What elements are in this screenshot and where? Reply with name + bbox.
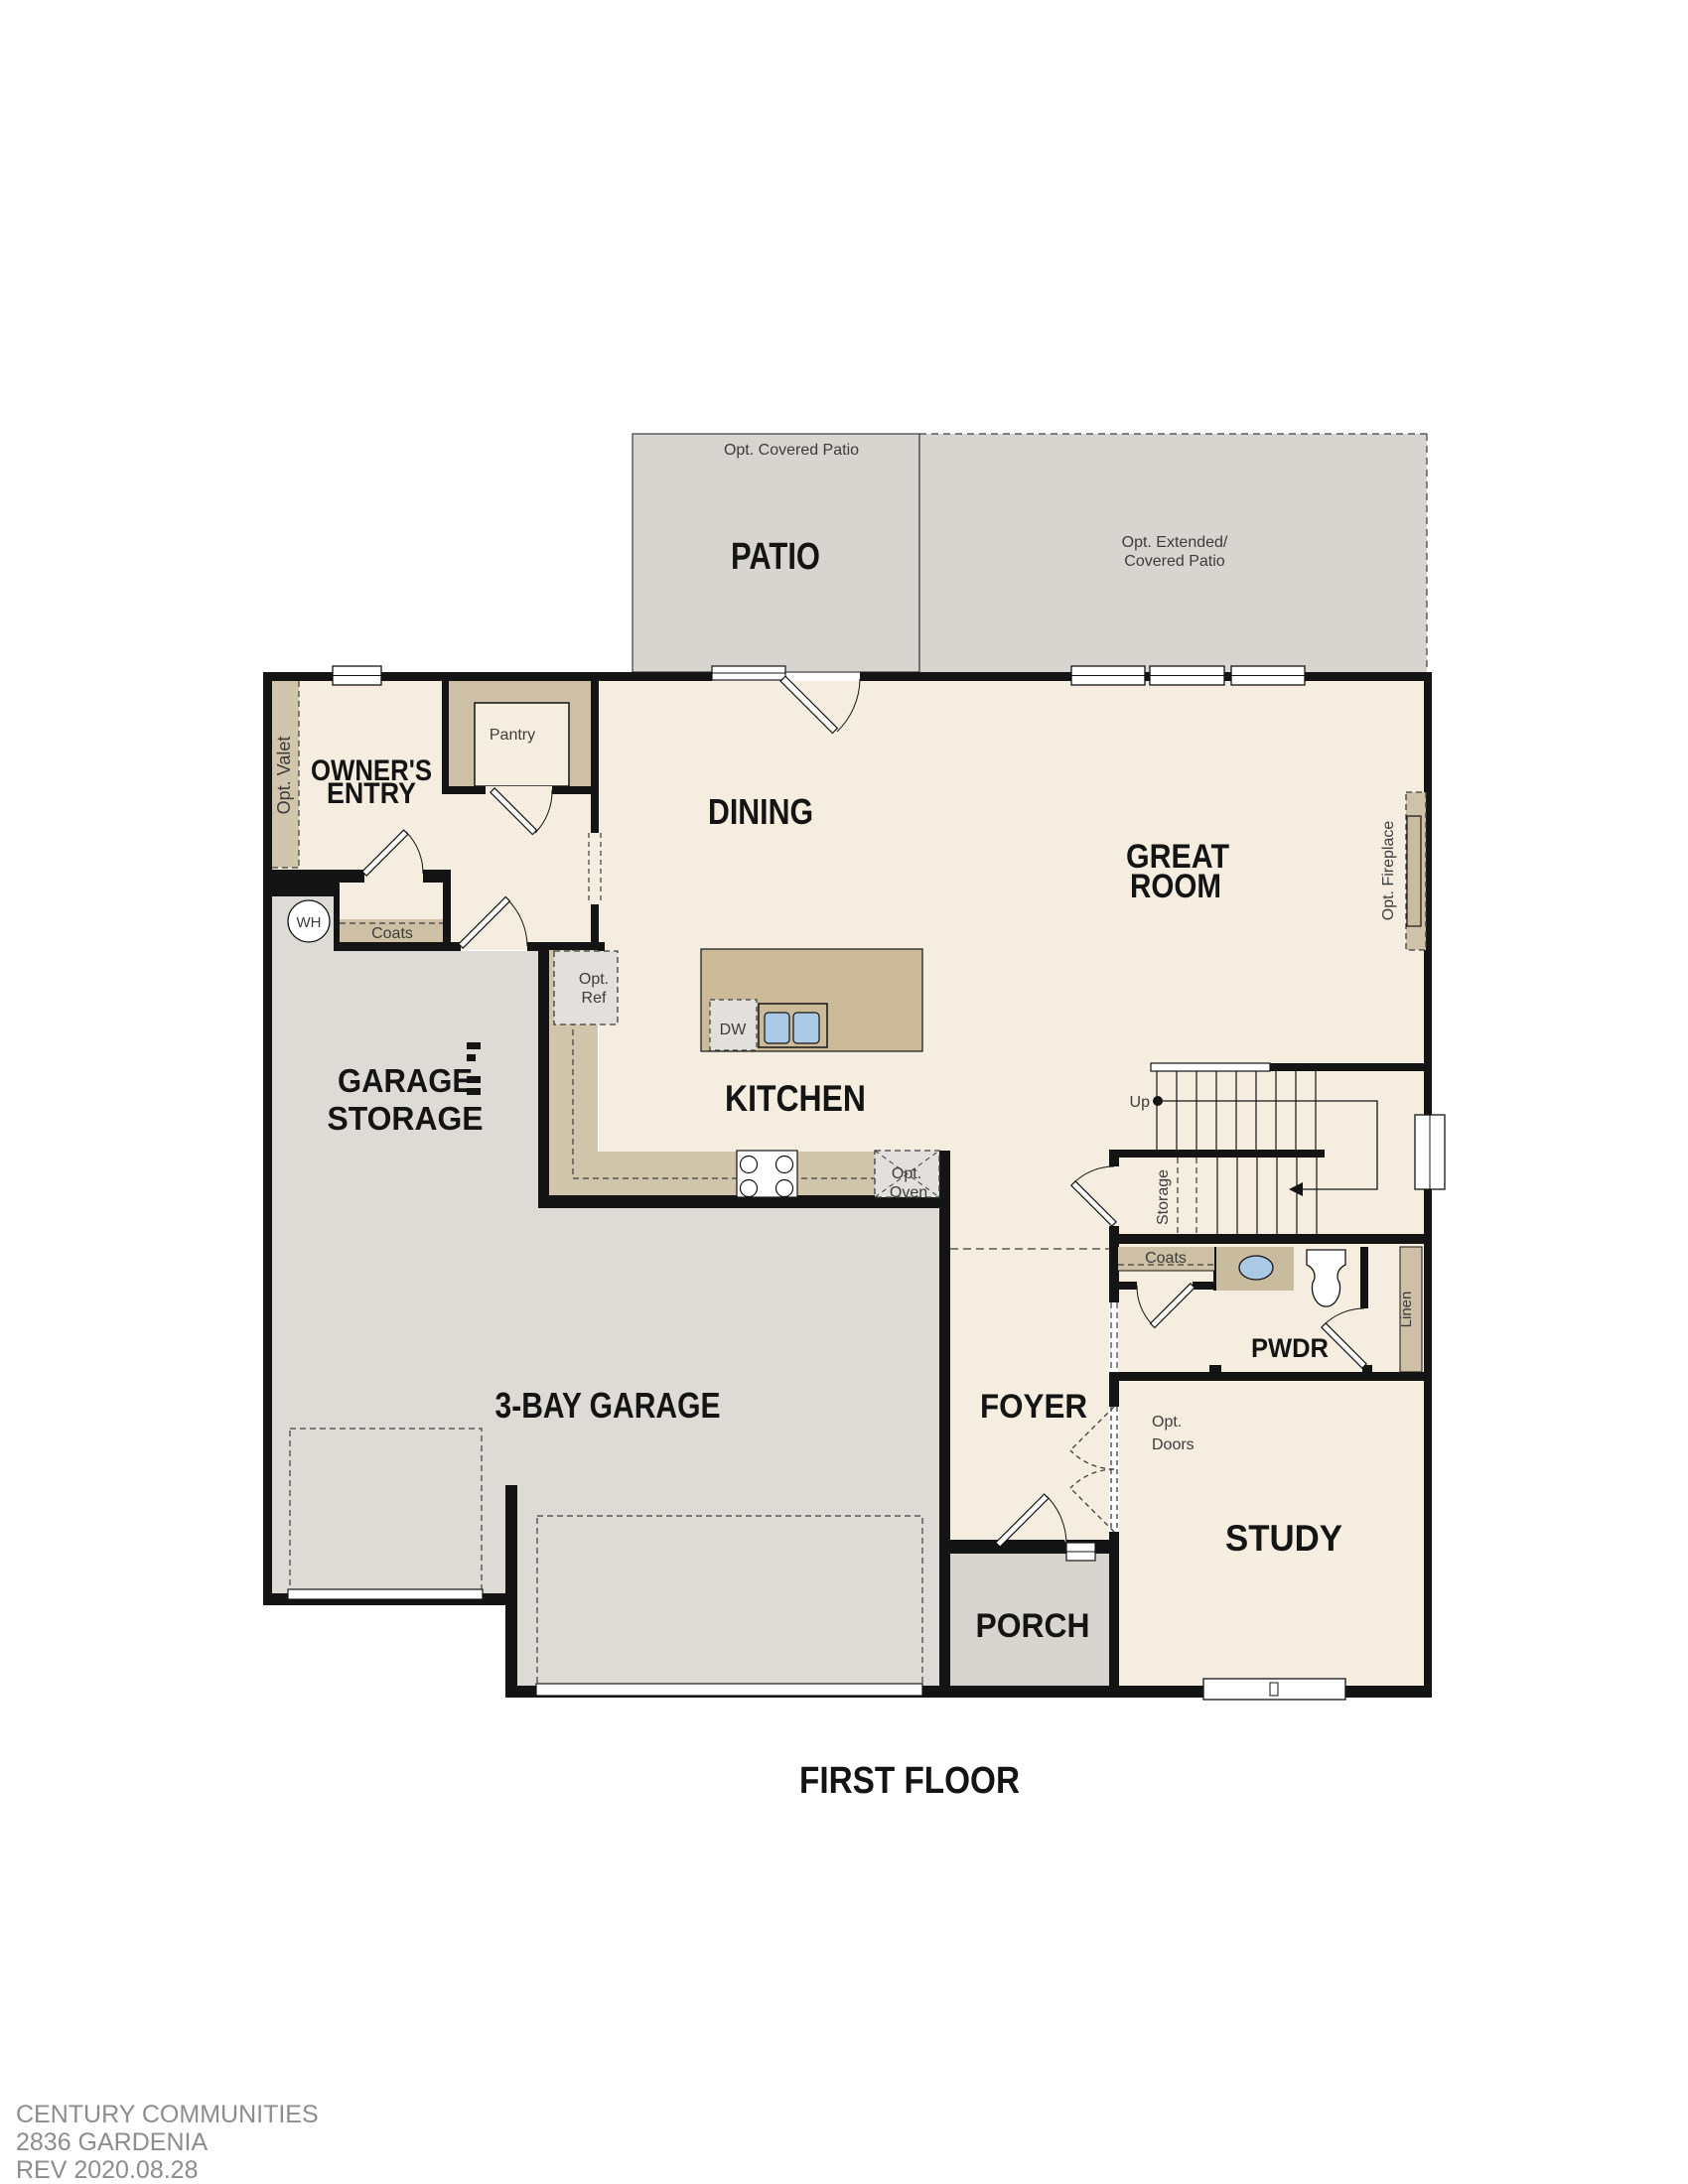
svg-text:Opt. Valet: Opt. Valet	[274, 737, 294, 815]
svg-text:REV 2020.08.28: REV 2020.08.28	[16, 2156, 198, 2184]
svg-text:Opt.: Opt.	[579, 971, 609, 988]
svg-text:STORAGE: STORAGE	[328, 1100, 484, 1137]
svg-text:WH: WH	[297, 914, 322, 931]
svg-text:STUDY: STUDY	[1225, 1518, 1342, 1559]
svg-text:Covered Patio: Covered Patio	[1124, 553, 1224, 570]
svg-text:Oven: Oven	[890, 1184, 927, 1201]
svg-text:Ref: Ref	[582, 990, 607, 1007]
svg-text:ROOM: ROOM	[1130, 868, 1221, 905]
svg-text:DINING: DINING	[708, 791, 813, 832]
svg-text:Coats: Coats	[371, 925, 413, 942]
svg-text:FIRST FLOOR: FIRST FLOOR	[799, 1760, 1020, 1802]
svg-text:2836 GARDENIA: 2836 GARDENIA	[16, 2128, 208, 2156]
svg-text:CENTURY COMMUNITIES: CENTURY COMMUNITIES	[16, 2101, 319, 2128]
svg-text:Opt. Covered Patio: Opt. Covered Patio	[724, 442, 859, 459]
svg-text:DW: DW	[720, 1022, 748, 1038]
svg-text:Opt. Fireplace: Opt. Fireplace	[1380, 821, 1397, 921]
svg-text:PORCH: PORCH	[976, 1607, 1090, 1645]
svg-text:Opt.: Opt.	[1152, 1414, 1182, 1431]
svg-text:PWDR: PWDR	[1251, 1333, 1329, 1363]
svg-text:FOYER: FOYER	[980, 1388, 1087, 1426]
svg-text:GARAGE: GARAGE	[338, 1062, 473, 1099]
svg-text:KITCHEN: KITCHEN	[725, 1078, 866, 1119]
svg-text:PATIO: PATIO	[731, 536, 820, 578]
svg-text:Opt. Extended/: Opt. Extended/	[1122, 534, 1228, 551]
svg-text:Linen: Linen	[1398, 1292, 1415, 1328]
svg-text:Coats: Coats	[1145, 1250, 1187, 1267]
svg-text:Storage: Storage	[1155, 1169, 1172, 1225]
svg-text:3-BAY GARAGE: 3-BAY GARAGE	[495, 1385, 721, 1426]
svg-text:Pantry: Pantry	[490, 727, 535, 744]
svg-text:Up: Up	[1130, 1094, 1151, 1111]
svg-text:Doors: Doors	[1152, 1436, 1195, 1453]
svg-text:ENTRY: ENTRY	[327, 777, 416, 810]
svg-text:Opt.: Opt.	[892, 1165, 921, 1182]
